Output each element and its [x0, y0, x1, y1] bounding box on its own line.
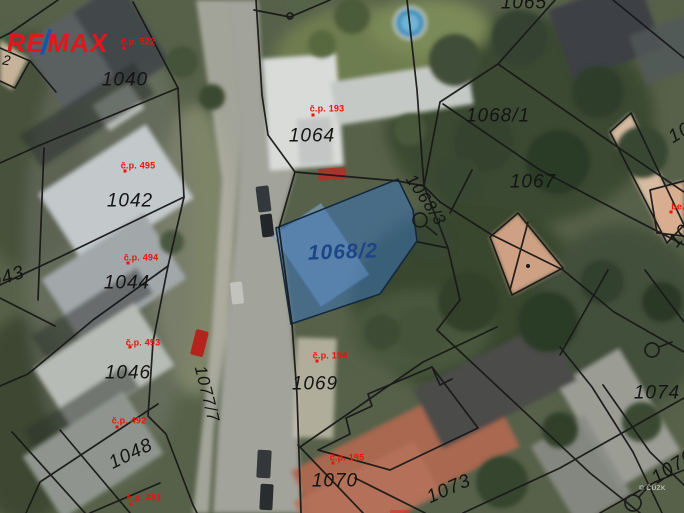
copyright-watermark: © ČÚZK	[639, 485, 666, 492]
parcel-number-label: 1074	[634, 384, 680, 403]
building-number-label: č.p. 193	[310, 105, 345, 114]
building-number-label: bez	[671, 203, 684, 212]
building-point-marker	[127, 262, 130, 265]
parcel-number-label: 1040	[102, 71, 148, 90]
building-point-marker	[332, 462, 335, 465]
building-point-marker	[129, 346, 132, 349]
parcel-number-label: 1068/1	[466, 107, 530, 126]
survey-point-marker	[526, 264, 530, 268]
selected-parcel-label: 1068/2	[308, 240, 379, 263]
building-point-marker	[123, 47, 126, 50]
remax-logo: RE/MAX	[5, 26, 111, 60]
building-point-marker	[116, 426, 119, 429]
parcel-number-label: 1064	[289, 127, 335, 146]
cadastral-symbol-circle	[645, 343, 659, 357]
building-point-marker	[130, 503, 133, 506]
parcel-number-label: 1065	[501, 0, 547, 13]
parcel-number-label: 1042	[107, 192, 153, 211]
parcel-number-label: 1067	[510, 173, 556, 192]
building-number-label: č.p. 522	[121, 38, 156, 47]
building-point-marker	[124, 170, 127, 173]
cadastral-map-canvas[interactable]: 104010421044104610481043106410651068/110…	[0, 0, 684, 513]
building-point-marker	[670, 211, 673, 214]
parcel-number-label: 1069	[292, 375, 338, 394]
remax-logo-max: MAX	[46, 30, 110, 56]
building-number-label: č.p. 492	[112, 417, 147, 426]
parcel-number-label: 1046	[105, 364, 151, 383]
building-number-label: č.p. 195	[330, 454, 365, 463]
building-point-marker	[316, 360, 319, 363]
parcel-number-label: 1070	[312, 472, 358, 491]
building-number-label: č.p. 491	[127, 494, 162, 503]
building-point-marker	[312, 114, 315, 117]
parcel-number-label: 1044	[104, 274, 150, 293]
